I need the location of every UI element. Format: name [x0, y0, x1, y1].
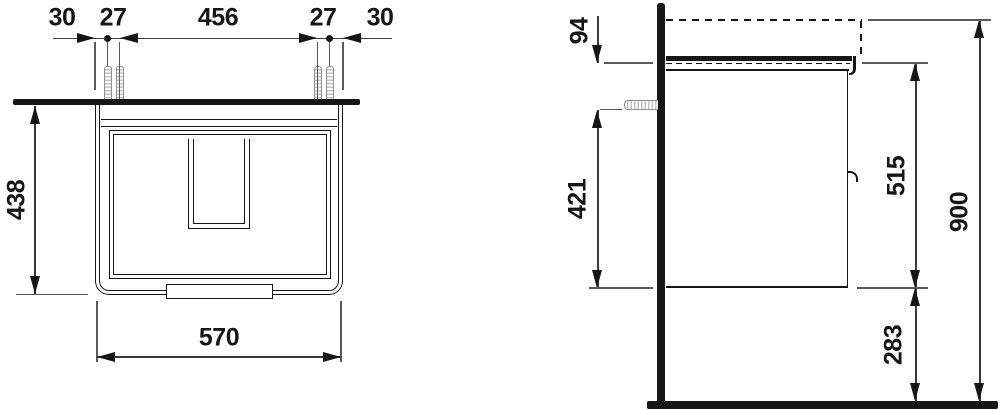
dim-label-30-left: 30: [49, 6, 76, 31]
plinth-tab: [166, 284, 273, 299]
hidden-edge-dashed: [666, 63, 850, 65]
drawer-handle-hook: [848, 171, 858, 182]
dim-label-94: 94: [568, 18, 593, 45]
witness-line: [329, 42, 330, 66]
dim-label-27-right: 27: [310, 6, 337, 31]
washbasin-dashed-outline: [860, 21, 862, 58]
witness-line: [604, 62, 653, 63]
siphon-cutout-inner: [193, 139, 245, 224]
dim-label-283: 283: [882, 325, 907, 365]
mounting-screw: [104, 66, 112, 99]
dim-label-456: 456: [198, 6, 238, 31]
dim-label-27-left: 27: [100, 6, 127, 31]
dim-arrow: [910, 288, 920, 306]
witness-line: [600, 109, 622, 110]
dim-label-30-right: 30: [367, 6, 394, 31]
witness-line: [862, 62, 928, 63]
top-rail-line: [101, 126, 337, 127]
dim-arrow: [592, 110, 602, 128]
witness-line: [589, 287, 653, 288]
dim-arrow: [910, 270, 920, 288]
dim-arrow: [120, 33, 138, 43]
dim-arrow: [323, 352, 341, 362]
floor-line: [647, 401, 998, 409]
witness-line: [94, 42, 95, 90]
dim-arrow: [910, 63, 920, 81]
vanity-technical-drawing: 30 27 456 27 30 438 570: [0, 0, 1000, 410]
top-rail-line: [101, 119, 337, 120]
dim-arrow: [592, 270, 602, 288]
dim-arrow: [97, 352, 115, 362]
dim-arrow: [343, 33, 361, 43]
cabinet-bottom-side: [666, 286, 848, 288]
wall-line: [657, 3, 665, 402]
washbasin-dashed-outline: [666, 19, 862, 21]
witness-line: [107, 42, 108, 66]
dim-label-515: 515: [885, 156, 910, 196]
dim-line-438: [34, 106, 35, 294]
dim-arrow: [974, 20, 984, 38]
witness-line: [317, 42, 318, 99]
dim-point-dot: [326, 35, 333, 42]
mounting-screw: [326, 66, 334, 99]
dim-arrow: [77, 33, 95, 43]
witness-line: [119, 42, 120, 99]
witness-line: [16, 294, 88, 295]
countertop-lip: [849, 56, 856, 75]
dim-label-421: 421: [566, 179, 591, 219]
dim-arrow: [974, 383, 984, 401]
witness-line: [868, 19, 991, 20]
dim-arrow: [30, 106, 40, 124]
countertop-side: [666, 56, 852, 61]
dim-label-570: 570: [199, 326, 239, 351]
dim-line-900: [979, 20, 980, 401]
dim-label-900: 900: [948, 192, 973, 232]
dim-point-dot: [104, 35, 111, 42]
witness-line: [342, 42, 343, 90]
cabinet-top-side: [666, 69, 849, 71]
dim-arrow: [910, 383, 920, 401]
dim-line-515: [915, 63, 916, 288]
dim-line-421: [597, 110, 598, 289]
dim-arrow: [299, 33, 317, 43]
dim-line-570: [97, 356, 341, 357]
dim-arrow: [30, 276, 40, 294]
dim-label-438: 438: [5, 180, 30, 220]
mounting-screw-side: [624, 100, 658, 110]
dim-arrow: [592, 45, 602, 63]
